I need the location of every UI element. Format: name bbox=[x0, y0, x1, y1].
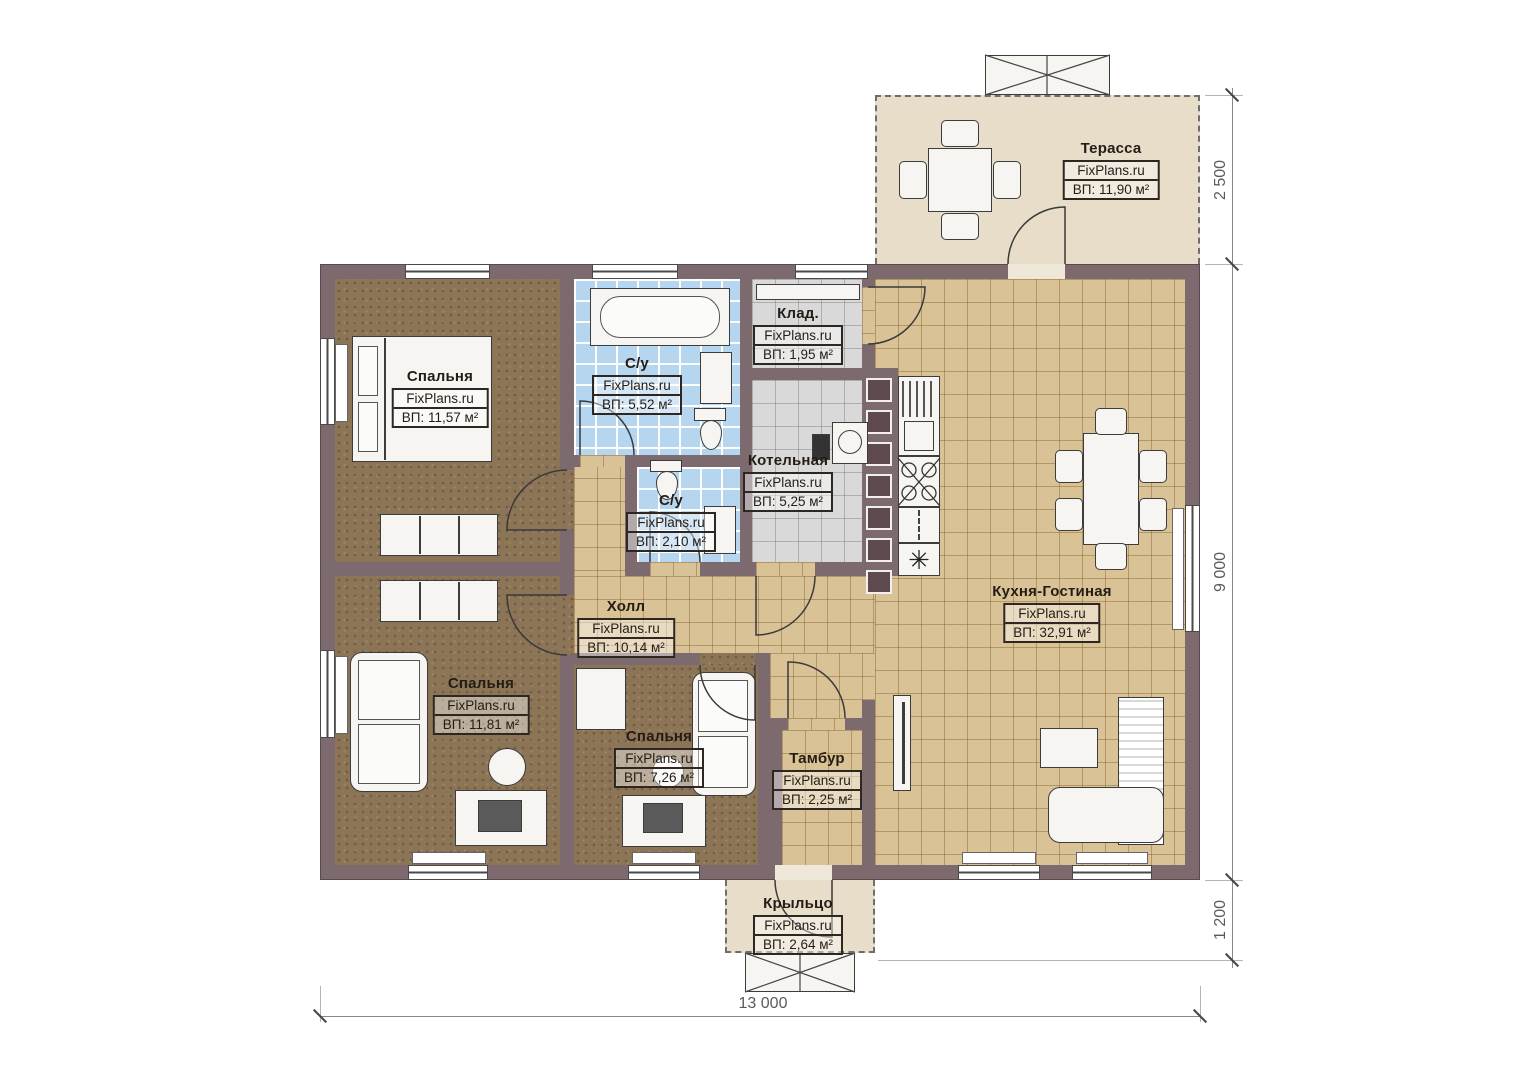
interior-wall bbox=[630, 562, 650, 576]
oven bbox=[904, 421, 934, 451]
brand-watermark: FixPlans.ru bbox=[1005, 605, 1099, 624]
room-name: С/у bbox=[626, 492, 716, 509]
room-name: Спальня bbox=[392, 368, 489, 385]
brand-watermark: FixPlans.ru bbox=[394, 390, 487, 409]
room-label-vestibule: Тамбур FixPlans.ru ВП: 2,25 м² bbox=[772, 750, 862, 810]
interior-wall bbox=[758, 653, 770, 865]
bath-cabinet bbox=[700, 352, 732, 404]
room-name: Холл bbox=[577, 598, 675, 615]
room-label-hall: Холл FixPlans.ru ВП: 10,14 м² bbox=[577, 598, 675, 658]
door-opening bbox=[788, 718, 845, 730]
door-opening bbox=[560, 470, 574, 530]
corner-sofa bbox=[1048, 787, 1164, 843]
dimension-terrace-depth: 2 500 bbox=[1212, 160, 1230, 200]
sofa-cushion bbox=[698, 736, 748, 788]
brand-watermark: FixPlans.ru bbox=[755, 917, 841, 936]
room-name: Клад. bbox=[753, 305, 843, 322]
label-box: FixPlans.ru ВП: 5,52 м² bbox=[592, 375, 682, 415]
terrace-steps-icon bbox=[985, 55, 1110, 95]
bathtub-basin bbox=[600, 296, 720, 338]
room-label-bedroom3: Спальня FixPlans.ru ВП: 7,26 м² bbox=[614, 728, 704, 788]
storage-shelf bbox=[756, 284, 860, 300]
wardrobe bbox=[380, 514, 498, 556]
interior-wall bbox=[862, 279, 875, 287]
wardrobe-divider bbox=[419, 582, 421, 620]
terrace-table bbox=[928, 148, 992, 212]
window bbox=[320, 650, 335, 738]
window bbox=[1072, 865, 1152, 880]
room-name: С/у bbox=[592, 355, 682, 372]
chair bbox=[1139, 450, 1167, 483]
room-name: Терасса bbox=[1063, 140, 1160, 157]
window bbox=[795, 264, 868, 279]
room-label-porch: Крыльцо FixPlans.ru ВП: 2,64 м² bbox=[753, 895, 843, 955]
door-opening bbox=[650, 562, 700, 576]
chair bbox=[1139, 498, 1167, 531]
interior-wall bbox=[740, 279, 752, 562]
radiator bbox=[962, 852, 1036, 864]
brand-watermark: FixPlans.ru bbox=[628, 514, 714, 533]
dining-table bbox=[1083, 433, 1139, 545]
label-box: FixPlans.ru ВП: 1,95 м² bbox=[753, 325, 843, 365]
brand-watermark: FixPlans.ru bbox=[594, 377, 680, 396]
brand-watermark: FixPlans.ru bbox=[774, 772, 860, 791]
extension-line bbox=[1205, 95, 1243, 96]
floor-plan: ✳ bbox=[0, 0, 1528, 1080]
room-area: ВП: 7,26 м² bbox=[616, 769, 702, 786]
extension-line bbox=[878, 960, 1243, 961]
radiator bbox=[632, 852, 696, 864]
flue-niches bbox=[866, 374, 892, 598]
room-area: ВП: 11,90 м² bbox=[1065, 181, 1158, 198]
pillow bbox=[358, 346, 378, 396]
porch-steps-icon bbox=[745, 953, 855, 992]
window bbox=[320, 338, 335, 425]
printer bbox=[643, 803, 683, 833]
wardrobe-divider bbox=[458, 516, 460, 554]
room-area: ВП: 2,10 м² bbox=[628, 533, 714, 550]
tv-screen-icon bbox=[902, 702, 905, 784]
room-area: ВП: 2,64 м² bbox=[755, 936, 841, 953]
room-area: ВП: 11,57 м² bbox=[394, 409, 487, 426]
wardrobe bbox=[380, 580, 498, 622]
flue-icon bbox=[866, 538, 892, 562]
dishwasher-icon bbox=[918, 510, 920, 540]
window bbox=[1185, 505, 1200, 632]
room-label-bathroom: С/у FixPlans.ru ВП: 5,52 м² bbox=[592, 355, 682, 415]
entrance-door-opening bbox=[775, 865, 832, 880]
sofa-cushion bbox=[358, 660, 420, 720]
room-area: ВП: 32,91 м² bbox=[1005, 624, 1099, 641]
chair bbox=[993, 161, 1021, 199]
door-opening bbox=[862, 287, 875, 344]
door-opening bbox=[560, 595, 574, 655]
room-area: ВП: 2,25 м² bbox=[774, 791, 860, 808]
flue-icon bbox=[866, 506, 892, 530]
label-box: FixPlans.ru ВП: 11,81 м² bbox=[433, 695, 530, 735]
room-name: Спальня bbox=[614, 728, 704, 745]
brand-watermark: FixPlans.ru bbox=[755, 327, 841, 346]
radiator bbox=[412, 852, 486, 864]
coffee-table bbox=[1040, 728, 1098, 768]
chair bbox=[1055, 450, 1083, 483]
chair bbox=[899, 161, 927, 199]
window bbox=[405, 264, 490, 279]
label-box: FixPlans.ru ВП: 10,14 м² bbox=[577, 618, 675, 658]
window bbox=[592, 264, 678, 279]
radiator bbox=[335, 656, 348, 734]
window bbox=[958, 865, 1040, 880]
room-label-kitchen-living: Кухня-Гостиная FixPlans.ru ВП: 32,91 м² bbox=[992, 583, 1111, 643]
printer bbox=[478, 800, 522, 832]
room-name: Крыльцо bbox=[753, 895, 843, 912]
counter-divider bbox=[899, 506, 939, 508]
brand-watermark: FixPlans.ru bbox=[616, 750, 702, 769]
room-area: ВП: 5,25 м² bbox=[745, 493, 831, 510]
sofa-cushion bbox=[698, 680, 748, 732]
vent-grille-icon bbox=[902, 381, 936, 417]
brand-watermark: FixPlans.ru bbox=[1065, 162, 1158, 181]
room-label-terrace: Терасса FixPlans.ru ВП: 11,90 м² bbox=[1063, 140, 1160, 200]
interior-wall bbox=[845, 718, 875, 730]
room-label-boiler: Котельная FixPlans.ru ВП: 5,25 м² bbox=[743, 452, 833, 512]
chair bbox=[1055, 498, 1083, 531]
hall-floor bbox=[574, 455, 625, 576]
room-label-storage: Клад. FixPlans.ru ВП: 1,95 м² bbox=[753, 305, 843, 365]
terrace-door-opening bbox=[1008, 264, 1065, 279]
room-area: ВП: 1,95 м² bbox=[755, 346, 841, 363]
dimension-porch-depth: 1 200 bbox=[1212, 900, 1230, 940]
radiator bbox=[335, 344, 348, 422]
hall-floor bbox=[770, 653, 875, 718]
brand-watermark: FixPlans.ru bbox=[745, 474, 831, 493]
room-name: Спальня bbox=[433, 675, 530, 692]
room-name: Тамбур bbox=[772, 750, 862, 767]
room-label-bedroom1: Спальня FixPlans.ru ВП: 11,57 м² bbox=[392, 368, 489, 428]
interior-wall bbox=[752, 368, 862, 380]
sofa-cushion bbox=[358, 724, 420, 784]
label-box: FixPlans.ru ВП: 11,90 м² bbox=[1063, 160, 1160, 200]
label-box: FixPlans.ru ВП: 2,64 м² bbox=[753, 915, 843, 955]
chair bbox=[1095, 408, 1127, 435]
interior-wall bbox=[335, 562, 574, 576]
counter-divider bbox=[899, 455, 939, 457]
extension-line bbox=[1205, 880, 1243, 881]
wardrobe-divider bbox=[458, 582, 460, 620]
room-area: ВП: 11,81 м² bbox=[435, 716, 528, 733]
stool bbox=[488, 748, 526, 786]
radiator bbox=[1076, 852, 1148, 864]
closet bbox=[576, 668, 626, 730]
brand-watermark: FixPlans.ru bbox=[435, 697, 528, 716]
extension-line bbox=[1205, 264, 1243, 265]
counter-divider bbox=[899, 542, 939, 544]
bed-line bbox=[384, 338, 386, 460]
label-box: FixPlans.ru ВП: 11,57 м² bbox=[392, 388, 489, 428]
label-box: FixPlans.ru ВП: 5,25 м² bbox=[743, 472, 833, 512]
room-name: Котельная bbox=[743, 452, 833, 469]
chair bbox=[941, 213, 979, 240]
dimension-line-bottom bbox=[320, 1016, 1200, 1017]
room-area: ВП: 5,52 м² bbox=[594, 396, 680, 413]
fridge-icon: ✳ bbox=[908, 547, 930, 573]
room-label-wc: С/у FixPlans.ru ВП: 2,10 м² bbox=[626, 492, 716, 552]
label-box: FixPlans.ru ВП: 2,25 м² bbox=[772, 770, 862, 810]
label-box: FixPlans.ru ВП: 32,91 м² bbox=[1003, 603, 1101, 643]
door-opening bbox=[700, 653, 755, 665]
flue-icon bbox=[866, 410, 892, 434]
room-label-bedroom2: Спальня FixPlans.ru ВП: 11,81 м² bbox=[433, 675, 530, 735]
interior-wall bbox=[560, 655, 574, 865]
brand-watermark: FixPlans.ru bbox=[579, 620, 673, 639]
window bbox=[408, 865, 488, 880]
wardrobe-divider bbox=[419, 516, 421, 554]
door-opening bbox=[756, 562, 815, 576]
label-box: FixPlans.ru ВП: 2,10 м² bbox=[626, 512, 716, 552]
flue-icon bbox=[866, 378, 892, 402]
dimension-house-side: 9 000 bbox=[1212, 552, 1230, 592]
interior-wall bbox=[700, 562, 756, 576]
dimension-house-width: 13 000 bbox=[739, 995, 788, 1013]
room-name: Кухня-Гостиная bbox=[992, 583, 1111, 600]
chair bbox=[941, 120, 979, 147]
interior-wall bbox=[560, 279, 574, 470]
interior-wall bbox=[574, 455, 580, 467]
window bbox=[628, 865, 700, 880]
washing-machine-drum-icon bbox=[838, 430, 862, 454]
radiator bbox=[1172, 508, 1184, 630]
flue-icon bbox=[866, 474, 892, 498]
pillow bbox=[358, 402, 378, 452]
dimension-line-right bbox=[1232, 88, 1233, 968]
chair bbox=[1095, 543, 1127, 570]
interior-wall bbox=[862, 344, 875, 368]
flue-icon bbox=[866, 570, 892, 594]
room-area: ВП: 10,14 м² bbox=[579, 639, 673, 656]
label-box: FixPlans.ru ВП: 7,26 м² bbox=[614, 748, 704, 788]
flue-icon bbox=[866, 442, 892, 466]
